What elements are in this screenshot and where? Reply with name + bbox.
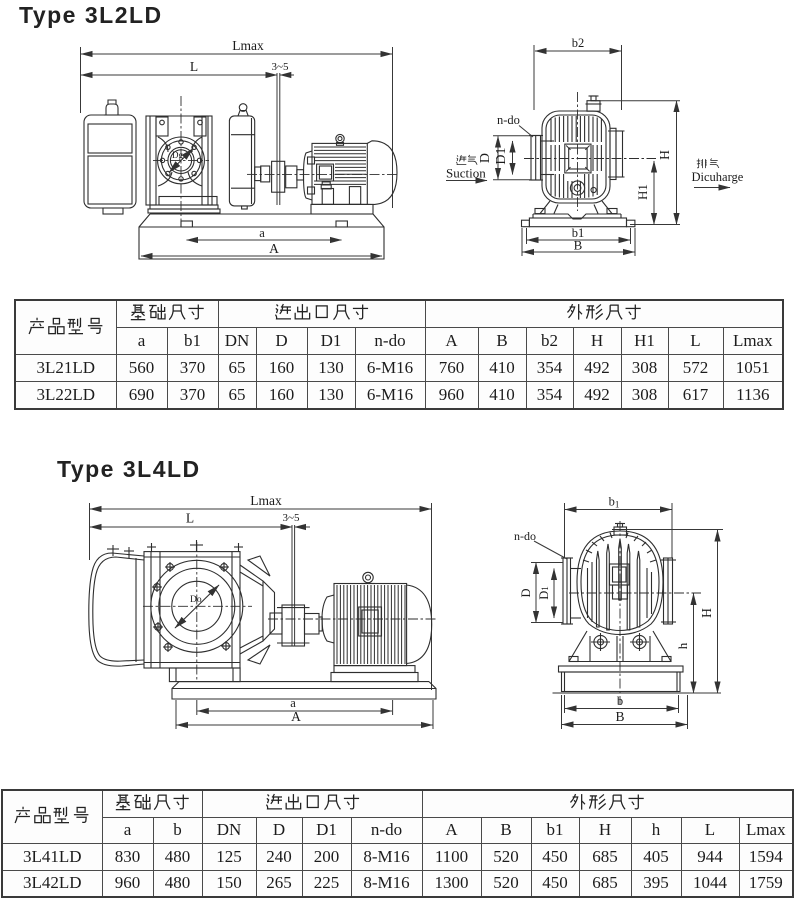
svg-text:Suction: Suction xyxy=(446,166,486,181)
svg-text:B: B xyxy=(615,709,624,724)
svg-text:n-do: n-do xyxy=(514,529,536,543)
svg-text:b: b xyxy=(617,694,623,708)
svg-text:D: D xyxy=(478,153,493,163)
svg-text:n-do: n-do xyxy=(497,113,520,127)
svg-text:H: H xyxy=(657,150,672,160)
svg-text:a: a xyxy=(290,696,296,710)
svg-text:3~5: 3~5 xyxy=(283,512,300,524)
svg-text:A: A xyxy=(269,241,279,256)
svg-text:H1: H1 xyxy=(635,184,650,200)
svg-text:Dicuharge: Dicuharge xyxy=(692,170,744,184)
svg-text:Lmax: Lmax xyxy=(250,493,282,508)
svg-text:D: D xyxy=(519,588,533,597)
svg-text:Do: Do xyxy=(190,595,202,605)
svg-text:b2: b2 xyxy=(572,38,585,50)
svg-text:h: h xyxy=(675,642,690,649)
svg-text:b1: b1 xyxy=(609,495,620,510)
svg-text:B: B xyxy=(574,238,583,253)
svg-text:L: L xyxy=(186,511,194,526)
svg-text:A: A xyxy=(291,709,301,724)
svg-text:Dg: Dg xyxy=(172,150,183,160)
svg-text:H: H xyxy=(699,608,714,618)
svg-text:a: a xyxy=(259,226,265,240)
svg-text:L: L xyxy=(190,59,198,74)
svg-text:D1: D1 xyxy=(494,147,509,164)
svg-text:Lmax: Lmax xyxy=(232,40,264,53)
svg-text:D1: D1 xyxy=(537,586,551,600)
svg-text:3~5: 3~5 xyxy=(272,61,289,73)
